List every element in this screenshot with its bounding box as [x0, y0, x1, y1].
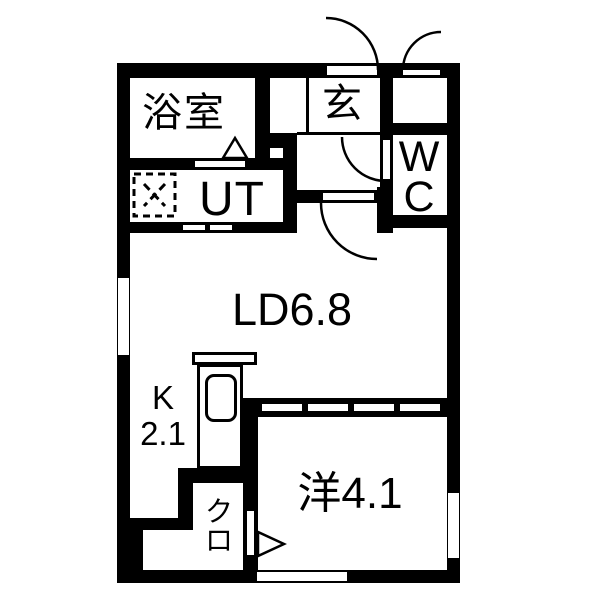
closet-door-direction-marker	[258, 532, 284, 556]
washer-pan-hatch	[134, 174, 175, 216]
western-room-name: 洋	[297, 469, 341, 518]
kitchen-area: 2.1	[126, 416, 200, 452]
kitchen-label: K2.1	[126, 380, 200, 453]
living-dining-area: 6.8	[289, 284, 352, 335]
bathroom-door-direction-marker	[223, 138, 247, 158]
floor-plan: 浴室 UT 玄 WC LD6.8 K2.1 洋4.1 クロ	[0, 0, 600, 600]
western-room-label: 洋4.1	[294, 472, 406, 516]
western-room-area: 4.1	[341, 469, 402, 518]
ld-door-swing-arc	[321, 203, 377, 259]
closet-label: クロ	[204, 498, 234, 555]
utility-label: UT	[192, 176, 272, 224]
porch-storage-door-swing-arc	[403, 32, 441, 70]
bathroom-label: 浴室	[134, 93, 234, 133]
kitchen-name: K	[126, 380, 200, 416]
entrance-door-swing-arc	[326, 18, 378, 70]
wc-door-swing-arc	[342, 137, 386, 181]
toilet-label: WC	[396, 138, 442, 217]
living-dining-name: LD	[232, 284, 290, 335]
living-dining-label: LD6.8	[226, 287, 358, 332]
entrance-label: 玄	[320, 84, 364, 124]
